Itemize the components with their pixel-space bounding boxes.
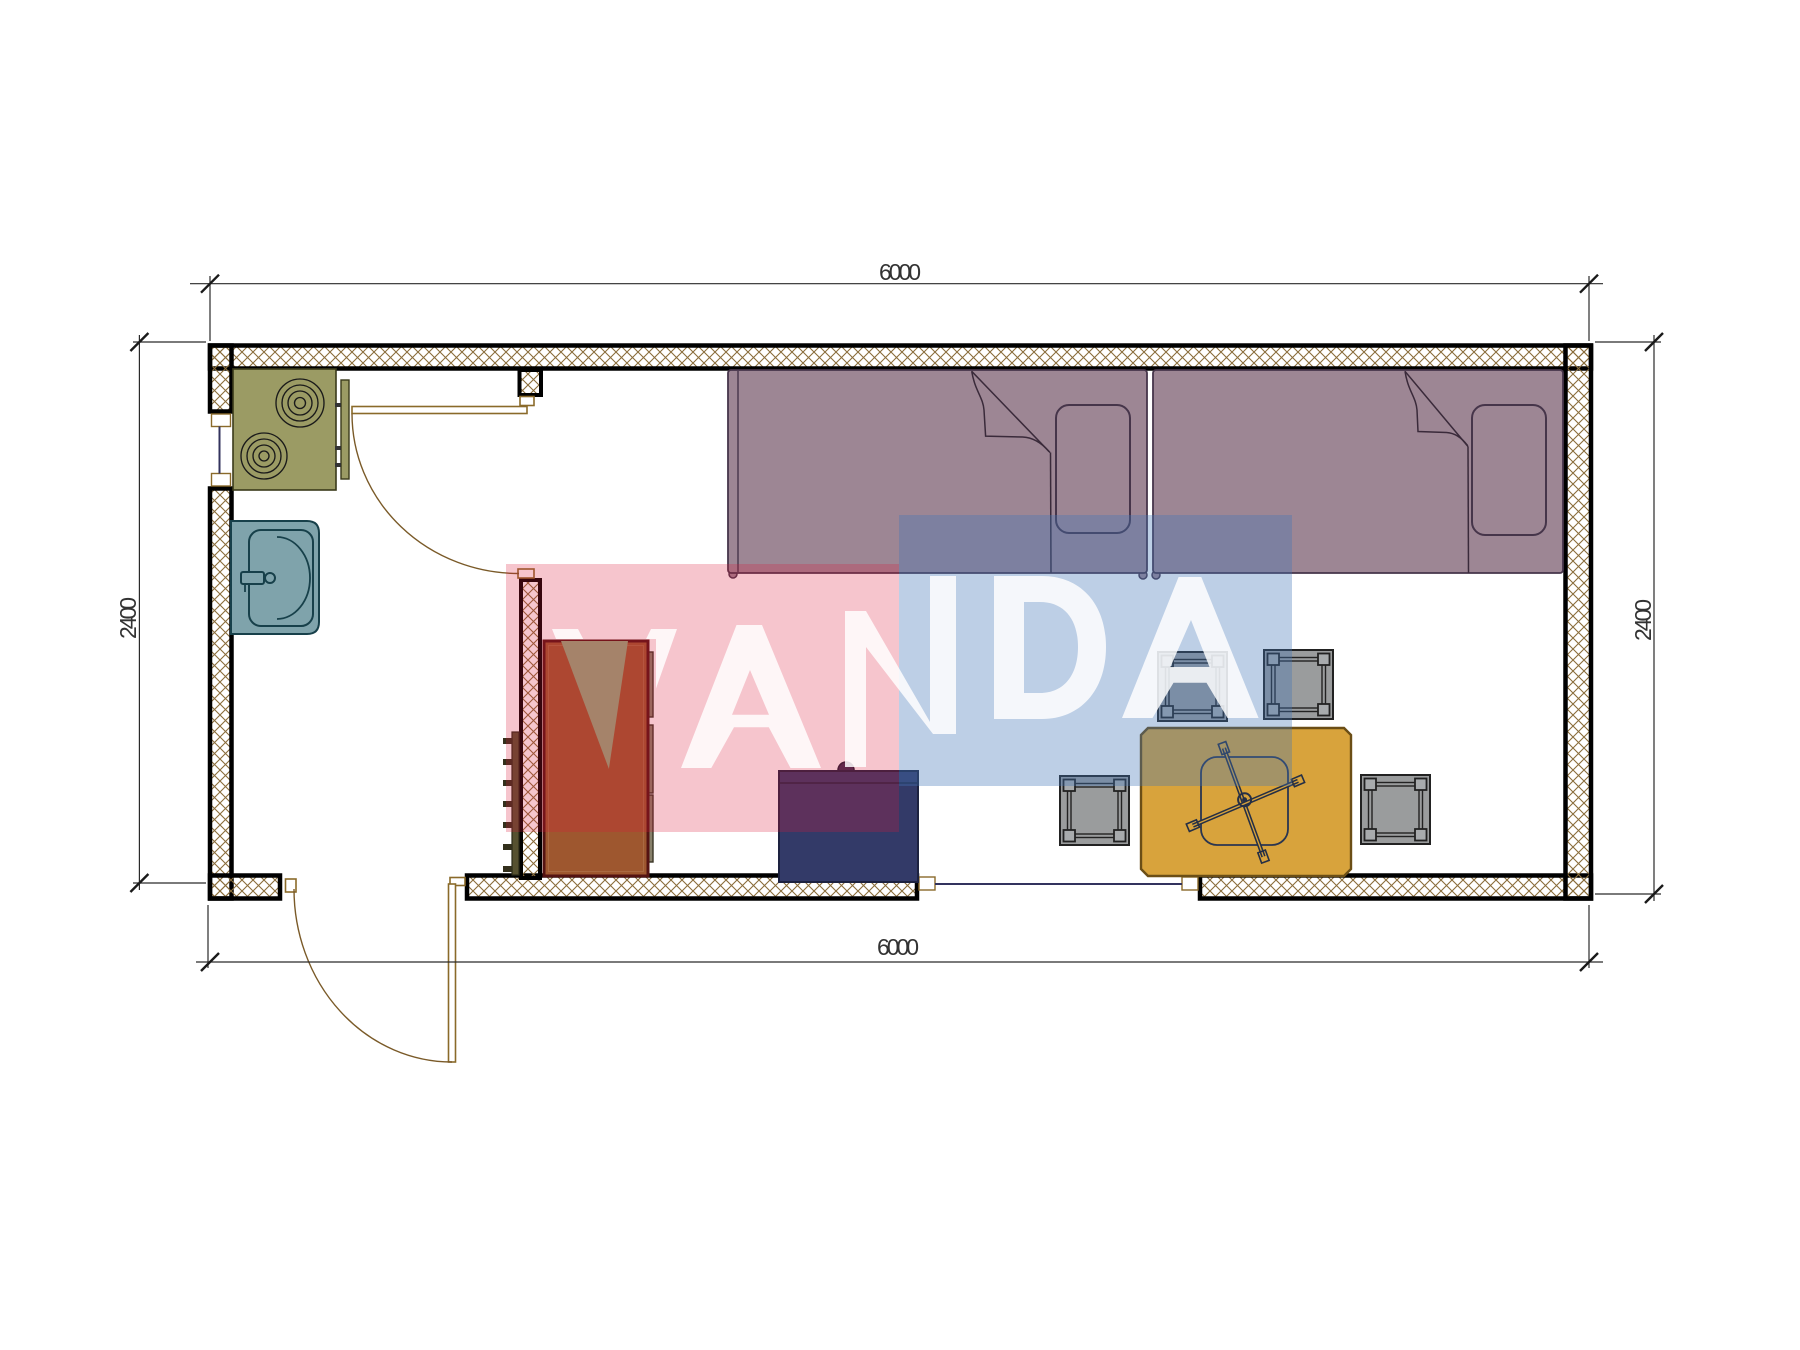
svg-text:2400: 2400 (1630, 599, 1656, 641)
svg-text:2400: 2400 (115, 597, 141, 639)
svg-text:6000: 6000 (879, 259, 921, 285)
svg-text:6000: 6000 (877, 934, 919, 960)
